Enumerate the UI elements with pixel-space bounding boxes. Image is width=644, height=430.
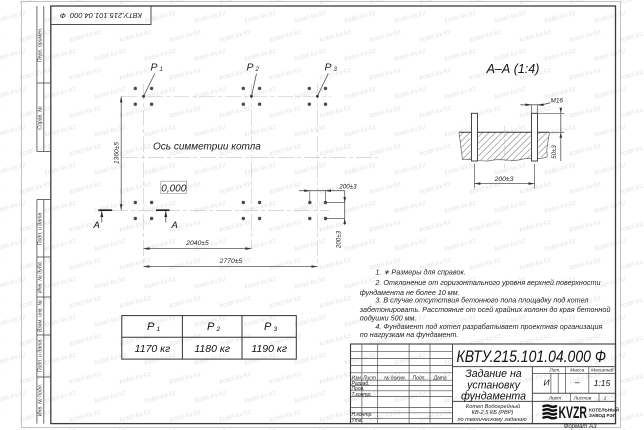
svg-text:kotel-kv.kz: kotel-kv.kz bbox=[194, 124, 228, 139]
svg-text:kotel-kv.kz: kotel-kv.kz bbox=[619, 29, 644, 44]
svg-text:kotel-kv.kz: kotel-kv.kz bbox=[44, 86, 78, 101]
svg-text:kotel-kv.kz: kotel-kv.kz bbox=[444, 48, 478, 63]
svg-text:Листов: Листов bbox=[573, 395, 592, 401]
svg-text:kotel-kv.kz: kotel-kv.kz bbox=[369, 67, 403, 82]
svg-text:kotel-kv.kz: kotel-kv.kz bbox=[0, 257, 2, 272]
svg-text:kotel-kv.kz: kotel-kv.kz bbox=[94, 276, 128, 291]
svg-text:Р: Р bbox=[151, 62, 158, 74]
svg-text:kotel-kv.kz: kotel-kv.kz bbox=[94, 390, 128, 405]
svg-text:kotel-kv.kz: kotel-kv.kz bbox=[69, 295, 103, 310]
svg-text:kotel-kv.kz: kotel-kv.kz bbox=[19, 257, 53, 272]
svg-text:kotel-kv.kz: kotel-kv.kz bbox=[619, 295, 644, 310]
svg-text:kotel-kv.kz: kotel-kv.kz bbox=[0, 390, 27, 405]
svg-text:Р: Р bbox=[247, 62, 254, 74]
svg-text:kotel-kv.kz: kotel-kv.kz bbox=[119, 295, 153, 310]
svg-text:kotel-kv.kz: kotel-kv.kz bbox=[194, 200, 228, 215]
svg-text:kotel-kv.kz: kotel-kv.kz bbox=[144, 162, 178, 177]
svg-text:kotel-kv.kz: kotel-kv.kz bbox=[94, 124, 128, 139]
svg-text:kotel-kv.kz: kotel-kv.kz bbox=[19, 67, 53, 82]
svg-text:kotel-kv.kz: kotel-kv.kz bbox=[419, 67, 453, 82]
svg-text:1190 кг: 1190 кг bbox=[251, 343, 287, 355]
svg-text:КВТУ.215.101.04.000 Ф: КВТУ.215.101.04.000 Ф bbox=[60, 11, 142, 20]
svg-text:Подп. и дата: Подп. и дата bbox=[37, 340, 43, 373]
svg-text:kotel-kv.kz: kotel-kv.kz bbox=[0, 314, 27, 329]
svg-text:kotel-kv.kz: kotel-kv.kz bbox=[144, 200, 178, 215]
svg-text:50±3: 50±3 bbox=[551, 145, 558, 159]
svg-text:Р: Р bbox=[207, 321, 215, 333]
svg-text:kotel-kv.kz: kotel-kv.kz bbox=[194, 48, 228, 63]
svg-text:kotel-kv.kz: kotel-kv.kz bbox=[194, 86, 228, 101]
svg-text:2: 2 bbox=[216, 326, 221, 333]
svg-text:kotel-kv.kz: kotel-kv.kz bbox=[419, 409, 453, 424]
svg-text:kotel-kv.kz: kotel-kv.kz bbox=[544, 48, 578, 63]
svg-text:kotel-kv.kz: kotel-kv.kz bbox=[144, 390, 178, 405]
svg-text:kotel-kv.kz: kotel-kv.kz bbox=[169, 409, 203, 424]
svg-text:kotel-kv.kz: kotel-kv.kz bbox=[494, 48, 528, 63]
svg-text:kotel-kv.kz: kotel-kv.kz bbox=[494, 86, 528, 101]
svg-text:2040±5: 2040±5 bbox=[185, 240, 209, 247]
svg-text:kotel-kv.kz: kotel-kv.kz bbox=[194, 276, 228, 291]
svg-text:kotel-kv.kz: kotel-kv.kz bbox=[269, 181, 303, 196]
svg-text:Подп.: Подп. bbox=[413, 376, 426, 382]
svg-text:kotel-kv.kz: kotel-kv.kz bbox=[19, 181, 53, 196]
svg-text:kotel-kv.kz: kotel-kv.kz bbox=[619, 257, 644, 272]
svg-text:kotel-kv.kz: kotel-kv.kz bbox=[544, 200, 578, 215]
svg-text:3. В случае отсутствия бетонно: 3. В случае отсутствия бетонного пола пл… bbox=[375, 296, 588, 305]
svg-text:kotel-kv.kz: kotel-kv.kz bbox=[619, 409, 644, 424]
svg-text:kotel-kv.kz: kotel-kv.kz bbox=[169, 29, 203, 44]
svg-text:kotel-kv.kz: kotel-kv.kz bbox=[269, 257, 303, 272]
svg-text:kotel-kv.kz: kotel-kv.kz bbox=[319, 29, 353, 44]
svg-text:kotel-kv.kz: kotel-kv.kz bbox=[444, 10, 478, 25]
svg-text:kotel-kv.kz: kotel-kv.kz bbox=[344, 48, 378, 63]
svg-text:kotel-kv.kz: kotel-kv.kz bbox=[619, 0, 644, 6]
svg-text:1:15: 1:15 bbox=[594, 378, 611, 388]
svg-text:kotel-kv.kz: kotel-kv.kz bbox=[269, 143, 303, 158]
svg-text:kotel-kv.kz: kotel-kv.kz bbox=[44, 390, 78, 405]
svg-text:kotel-kv.kz: kotel-kv.kz bbox=[294, 352, 328, 367]
svg-text:kotel-kv.kz: kotel-kv.kz bbox=[369, 409, 403, 424]
svg-text:kotel-kv.kz: kotel-kv.kz bbox=[0, 409, 2, 424]
svg-text:kotel-kv.kz: kotel-kv.kz bbox=[419, 105, 453, 120]
svg-text:kotel-kv.kz: kotel-kv.kz bbox=[69, 181, 103, 196]
svg-text:kotel-kv.kz: kotel-kv.kz bbox=[69, 0, 103, 6]
svg-text:kotel-kv.kz: kotel-kv.kz bbox=[169, 0, 203, 6]
svg-text:М16: М16 bbox=[551, 97, 564, 104]
svg-text:kotel-kv.kz: kotel-kv.kz bbox=[0, 105, 2, 120]
svg-text:kotel-kv.kz: kotel-kv.kz bbox=[94, 162, 128, 177]
svg-text:kotel-kv.kz: kotel-kv.kz bbox=[594, 124, 628, 139]
svg-text:kotel-kv.kz: kotel-kv.kz bbox=[544, 10, 578, 25]
svg-text:kotel-kv.kz: kotel-kv.kz bbox=[469, 257, 503, 272]
svg-text:kotel-kv.kz: kotel-kv.kz bbox=[494, 10, 528, 25]
svg-text:kotel-kv.kz: kotel-kv.kz bbox=[269, 371, 303, 386]
svg-text:kotel-kv.kz: kotel-kv.kz bbox=[369, 105, 403, 120]
svg-text:КОТЕЛЬНЫЙ: КОТЕЛЬНЫЙ bbox=[589, 406, 619, 413]
svg-text:kotel-kv.kz: kotel-kv.kz bbox=[244, 10, 278, 25]
svg-text:Т.контр.: Т.контр. bbox=[352, 392, 372, 398]
svg-text:по техническому заданию: по техническому заданию bbox=[457, 417, 527, 423]
svg-text:200±3: 200±3 bbox=[494, 176, 514, 183]
svg-text:kotel-kv.kz: kotel-kv.kz bbox=[519, 257, 553, 272]
svg-text:kotel-kv.kz: kotel-kv.kz bbox=[244, 124, 278, 139]
svg-text:kotel-kv.kz: kotel-kv.kz bbox=[394, 48, 428, 63]
svg-text:kotel-kv.kz: kotel-kv.kz bbox=[0, 124, 27, 139]
svg-text:kotel-kv.kz: kotel-kv.kz bbox=[244, 238, 278, 253]
svg-text:kotel-kv.kz: kotel-kv.kz bbox=[69, 371, 103, 386]
svg-text:kotel-kv.kz: kotel-kv.kz bbox=[369, 0, 403, 6]
svg-text:Инв. № подл.: Инв. № подл. bbox=[37, 384, 43, 416]
svg-text:КВТУ.215.101.04.000 Ф: КВТУ.215.101.04.000 Ф bbox=[457, 348, 607, 366]
svg-text:–: – bbox=[574, 377, 580, 387]
svg-text:kotel-kv.kz: kotel-kv.kz bbox=[44, 124, 78, 139]
svg-text:kotel-kv.kz: kotel-kv.kz bbox=[169, 295, 203, 310]
svg-text:kotel-kv.kz: kotel-kv.kz bbox=[244, 390, 278, 405]
svg-text:kotel-kv.kz: kotel-kv.kz bbox=[119, 257, 153, 272]
svg-text:kotel-kv.kz: kotel-kv.kz bbox=[169, 67, 203, 82]
svg-text:Перв. примен.: Перв. примен. bbox=[37, 28, 43, 62]
svg-text:kotel-kv.kz: kotel-kv.kz bbox=[569, 181, 603, 196]
svg-text:kotel-kv.kz: kotel-kv.kz bbox=[0, 143, 2, 158]
svg-text:kotel-kv.kz: kotel-kv.kz bbox=[269, 295, 303, 310]
svg-text:kotel-kv.kz: kotel-kv.kz bbox=[0, 352, 27, 367]
svg-text:kotel-kv.kz: kotel-kv.kz bbox=[269, 67, 303, 82]
svg-text:kotel-kv.kz: kotel-kv.kz bbox=[119, 105, 153, 120]
svg-text:kotel-kv.kz: kotel-kv.kz bbox=[119, 409, 153, 424]
svg-text:Ось симметрии котла: Ось симметрии котла bbox=[153, 141, 261, 152]
svg-text:kotel-kv.kz: kotel-kv.kz bbox=[569, 257, 603, 272]
svg-text:kotel-kv.kz: kotel-kv.kz bbox=[69, 105, 103, 120]
svg-text:kotel-kv.kz: kotel-kv.kz bbox=[519, 333, 553, 348]
svg-text:kotel-kv.kz: kotel-kv.kz bbox=[394, 200, 428, 215]
svg-text:kotel-kv.kz: kotel-kv.kz bbox=[119, 371, 153, 386]
svg-text:kotel-kv.kz: kotel-kv.kz bbox=[269, 409, 303, 424]
svg-text:kotel-kv.kz: kotel-kv.kz bbox=[619, 105, 644, 120]
svg-text:200±3: 200±3 bbox=[336, 230, 343, 249]
svg-text:kotel-kv.kz: kotel-kv.kz bbox=[19, 143, 53, 158]
svg-text:kotel-kv.kz: kotel-kv.kz bbox=[0, 29, 2, 44]
svg-text:kotel-kv.kz: kotel-kv.kz bbox=[119, 29, 153, 44]
svg-text:Взам. инв. №: Взам. инв. № bbox=[37, 300, 43, 332]
svg-text:Котел Водогрейный: Котел Водогрейный bbox=[466, 403, 520, 410]
svg-text:kotel-kv.kz: kotel-kv.kz bbox=[194, 10, 228, 25]
svg-text:kotel-kv.kz: kotel-kv.kz bbox=[44, 276, 78, 291]
svg-text:kotel-kv.kz: kotel-kv.kz bbox=[19, 105, 53, 120]
svg-text:1: 1 bbox=[157, 326, 161, 333]
svg-text:kotel-kv.kz: kotel-kv.kz bbox=[0, 219, 2, 234]
svg-text:А: А bbox=[171, 220, 178, 231]
svg-text:kotel-kv.kz: kotel-kv.kz bbox=[19, 29, 53, 44]
svg-text:Лит.: Лит. bbox=[548, 368, 560, 374]
svg-text:kotel-kv.kz: kotel-kv.kz bbox=[619, 333, 644, 348]
svg-text:Р: Р bbox=[325, 62, 332, 74]
svg-text:Утв.: Утв. bbox=[352, 418, 363, 424]
svg-text:kotel-kv.kz: kotel-kv.kz bbox=[344, 10, 378, 25]
svg-text:kotel-kv.kz: kotel-kv.kz bbox=[319, 0, 353, 6]
svg-text:kotel-kv.kz: kotel-kv.kz bbox=[269, 219, 303, 234]
svg-text:kotel-kv.kz: kotel-kv.kz bbox=[0, 238, 27, 253]
svg-text:kotel-kv.kz: kotel-kv.kz bbox=[619, 371, 644, 386]
svg-text:kotel-kv.kz: kotel-kv.kz bbox=[119, 181, 153, 196]
svg-text:kotel-kv.kz: kotel-kv.kz bbox=[394, 238, 428, 253]
svg-text:kotel-kv.kz: kotel-kv.kz bbox=[244, 276, 278, 291]
svg-text:kotel-kv.kz: kotel-kv.kz bbox=[569, 105, 603, 120]
svg-text:kotel-kv.kz: kotel-kv.kz bbox=[244, 162, 278, 177]
svg-text:kotel-kv.kz: kotel-kv.kz bbox=[94, 238, 128, 253]
svg-text:kotel-kv.kz: kotel-kv.kz bbox=[369, 219, 403, 234]
svg-text:kotel-kv.kz: kotel-kv.kz bbox=[394, 10, 428, 25]
svg-text:kotel-kv.kz: kotel-kv.kz bbox=[0, 276, 27, 291]
svg-text:kotel-kv.kz: kotel-kv.kz bbox=[469, 219, 503, 234]
svg-text:kotel-kv.kz: kotel-kv.kz bbox=[294, 390, 328, 405]
svg-text:Задание на: Задание на bbox=[465, 368, 522, 380]
svg-text:2: 2 bbox=[255, 67, 260, 73]
svg-text:kotel-kv.kz: kotel-kv.kz bbox=[469, 29, 503, 44]
svg-text:kotel-kv.kz: kotel-kv.kz bbox=[219, 409, 253, 424]
svg-text:kotel-kv.kz: kotel-kv.kz bbox=[269, 0, 303, 6]
svg-text:kotel-kv.kz: kotel-kv.kz bbox=[344, 86, 378, 101]
svg-text:kotel-kv.kz: kotel-kv.kz bbox=[119, 143, 153, 158]
svg-text:kotel-kv.kz: kotel-kv.kz bbox=[94, 48, 128, 63]
svg-text:kotel-kv.kz: kotel-kv.kz bbox=[219, 181, 253, 196]
svg-text:kotel-kv.kz: kotel-kv.kz bbox=[319, 409, 353, 424]
svg-text:kotel-kv.kz: kotel-kv.kz bbox=[419, 219, 453, 234]
svg-text:kotel-kv.kz: kotel-kv.kz bbox=[419, 29, 453, 44]
svg-text:kotel-kv.kz: kotel-kv.kz bbox=[44, 200, 78, 215]
svg-text:kotel-kv.kz: kotel-kv.kz bbox=[544, 162, 578, 177]
svg-text:kotel-kv.kz: kotel-kv.kz bbox=[19, 219, 53, 234]
svg-text:kotel-kv.kz: kotel-kv.kz bbox=[394, 124, 428, 139]
svg-text:kotel-kv.kz: kotel-kv.kz bbox=[144, 124, 178, 139]
svg-text:kotel-kv.kz: kotel-kv.kz bbox=[144, 10, 178, 25]
svg-text:200±3: 200±3 bbox=[338, 184, 357, 191]
svg-text:kotel-kv.kz: kotel-kv.kz bbox=[319, 295, 353, 310]
svg-text:Инв. № дубл.: Инв. № дубл. bbox=[37, 261, 43, 293]
svg-text:Дата: Дата bbox=[433, 376, 447, 382]
svg-text:kotel-kv.kz: kotel-kv.kz bbox=[44, 238, 78, 253]
svg-text:kotel-kv.kz: kotel-kv.kz bbox=[219, 219, 253, 234]
svg-text:Р: Р bbox=[147, 321, 155, 333]
svg-text:kotel-kv.kz: kotel-kv.kz bbox=[569, 219, 603, 234]
svg-text:kotel-kv.kz: kotel-kv.kz bbox=[0, 0, 2, 6]
svg-text:kotel-kv.kz: kotel-kv.kz bbox=[344, 162, 378, 177]
svg-text:0,000: 0,000 bbox=[161, 183, 186, 194]
svg-text:1: 1 bbox=[604, 395, 607, 401]
svg-text:kotel-kv.kz: kotel-kv.kz bbox=[469, 333, 503, 348]
svg-text:kotel-kv.kz: kotel-kv.kz bbox=[0, 48, 27, 63]
svg-text:kotel-kv.kz: kotel-kv.kz bbox=[69, 409, 103, 424]
svg-text:kotel-kv.kz: kotel-kv.kz bbox=[0, 333, 2, 348]
svg-text:1. ∗ Размеры для справок.: 1. ∗ Размеры для справок. bbox=[375, 267, 466, 276]
svg-text:kotel-kv.kz: kotel-kv.kz bbox=[169, 105, 203, 120]
svg-text:kotel-kv.kz: kotel-kv.kz bbox=[0, 67, 2, 82]
svg-text:kotel-kv.kz: kotel-kv.kz bbox=[494, 238, 528, 253]
svg-text:kotel-kv.kz: kotel-kv.kz bbox=[294, 124, 328, 139]
svg-text:kotel-kv.kz: kotel-kv.kz bbox=[344, 200, 378, 215]
svg-text:№ докум.: № докум. bbox=[384, 376, 406, 382]
svg-text:kotel-kv.kz: kotel-kv.kz bbox=[369, 29, 403, 44]
svg-text:kotel-kv.kz: kotel-kv.kz bbox=[19, 0, 53, 6]
svg-text:kotel-kv.kz: kotel-kv.kz bbox=[444, 86, 478, 101]
svg-text:ЗАВОД РЭП: ЗАВОД РЭП bbox=[589, 413, 616, 418]
svg-text:Подп. и дата: Подп. и дата bbox=[37, 213, 43, 246]
svg-text:kotel-kv.kz: kotel-kv.kz bbox=[369, 143, 403, 158]
svg-text:Лист: Лист bbox=[548, 395, 561, 401]
svg-text:kotel-kv.kz: kotel-kv.kz bbox=[394, 352, 428, 367]
svg-text:1360±5: 1360±5 bbox=[113, 142, 120, 164]
svg-text:kotel-kv.kz: kotel-kv.kz bbox=[319, 257, 353, 272]
svg-text:kotel-kv.kz: kotel-kv.kz bbox=[294, 238, 328, 253]
svg-text:kotel-kv.kz: kotel-kv.kz bbox=[294, 48, 328, 63]
svg-text:kotel-kv.kz: kotel-kv.kz bbox=[294, 10, 328, 25]
svg-text:kotel-kv.kz: kotel-kv.kz bbox=[119, 0, 153, 6]
svg-text:kotel-kv.kz: kotel-kv.kz bbox=[394, 162, 428, 177]
svg-text:А: А bbox=[93, 220, 100, 231]
svg-text:kotel-kv.kz: kotel-kv.kz bbox=[594, 238, 628, 253]
svg-text:kotel-kv.kz: kotel-kv.kz bbox=[269, 105, 303, 120]
svg-text:1170 кг: 1170 кг bbox=[135, 343, 171, 355]
svg-text:kotel-kv.kz: kotel-kv.kz bbox=[594, 86, 628, 101]
svg-text:3: 3 bbox=[274, 326, 278, 333]
svg-text:И: И bbox=[543, 378, 550, 388]
svg-text:kotel-kv.kz: kotel-kv.kz bbox=[294, 276, 328, 291]
svg-text:kotel-kv.kz: kotel-kv.kz bbox=[469, 0, 503, 6]
svg-text:kotel-kv.kz: kotel-kv.kz bbox=[319, 333, 353, 348]
svg-text:kotel-kv.kz: kotel-kv.kz bbox=[344, 238, 378, 253]
svg-text:kotel-kv.kz: kotel-kv.kz bbox=[619, 143, 644, 158]
svg-text:kotel-kv.kz: kotel-kv.kz bbox=[0, 181, 2, 196]
svg-text:kotel-kv.kz: kotel-kv.kz bbox=[344, 124, 378, 139]
svg-text:kotel-kv.kz: kotel-kv.kz bbox=[569, 333, 603, 348]
svg-text:Масштаб: Масштаб bbox=[591, 368, 614, 374]
svg-text:Справ. №: Справ. № bbox=[37, 106, 43, 130]
svg-text:1: 1 bbox=[160, 67, 163, 73]
svg-text:kotel-kv.kz: kotel-kv.kz bbox=[344, 352, 378, 367]
svg-text:1180 кг: 1180 кг bbox=[194, 343, 230, 355]
svg-text:Масса: Масса bbox=[570, 368, 585, 374]
svg-text:kotel-kv.kz: kotel-kv.kz bbox=[519, 0, 553, 6]
svg-text:kotel-kv.kz: kotel-kv.kz bbox=[369, 181, 403, 196]
svg-text:kotel-kv.kz: kotel-kv.kz bbox=[69, 333, 103, 348]
svg-text:kotel-kv.kz: kotel-kv.kz bbox=[144, 86, 178, 101]
svg-text:kotel-kv.kz: kotel-kv.kz bbox=[69, 67, 103, 82]
svg-text:kotel-kv.kz: kotel-kv.kz bbox=[594, 200, 628, 215]
svg-text:kotel-kv.kz: kotel-kv.kz bbox=[194, 390, 228, 405]
svg-text:kotel-kv.kz: kotel-kv.kz bbox=[69, 143, 103, 158]
svg-text:kotel-kv.kz: kotel-kv.kz bbox=[194, 162, 228, 177]
svg-text:KVZR: KVZR bbox=[559, 403, 588, 422]
svg-text:kotel-kv.kz: kotel-kv.kz bbox=[619, 181, 644, 196]
svg-text:kotel-kv.kz: kotel-kv.kz bbox=[519, 219, 553, 234]
svg-text:kotel-kv.kz: kotel-kv.kz bbox=[219, 29, 253, 44]
svg-text:kotel-kv.kz: kotel-kv.kz bbox=[44, 352, 78, 367]
svg-text:kotel-kv.kz: kotel-kv.kz bbox=[219, 371, 253, 386]
svg-text:kotel-kv.kz: kotel-kv.kz bbox=[144, 48, 178, 63]
svg-text:kotel-kv.kz: kotel-kv.kz bbox=[444, 200, 478, 215]
svg-text:kotel-kv.kz: kotel-kv.kz bbox=[19, 409, 53, 424]
svg-text:kotel-kv.kz: kotel-kv.kz bbox=[444, 238, 478, 253]
svg-text:kotel-kv.kz: kotel-kv.kz bbox=[0, 10, 27, 25]
svg-text:kotel-kv.kz: kotel-kv.kz bbox=[144, 238, 178, 253]
svg-text:kotel-kv.kz: kotel-kv.kz bbox=[219, 105, 253, 120]
svg-text:kotel-kv.kz: kotel-kv.kz bbox=[44, 48, 78, 63]
svg-text:kotel-kv.kz: kotel-kv.kz bbox=[169, 257, 203, 272]
svg-text:kotel-kv.kz: kotel-kv.kz bbox=[94, 200, 128, 215]
svg-text:kotel-kv.kz: kotel-kv.kz bbox=[94, 86, 128, 101]
svg-text:kotel-kv.kz: kotel-kv.kz bbox=[569, 0, 603, 6]
svg-text:kotel-kv.kz: kotel-kv.kz bbox=[119, 67, 153, 82]
svg-text:kotel-kv.kz: kotel-kv.kz bbox=[294, 314, 328, 329]
svg-text:kotel-kv.kz: kotel-kv.kz bbox=[69, 29, 103, 44]
svg-text:kotel-kv.kz: kotel-kv.kz bbox=[569, 143, 603, 158]
svg-text:КВ-2,5 КБ (РВР): КВ-2,5 КБ (РВР) bbox=[472, 410, 514, 416]
svg-text:kotel-kv.kz: kotel-kv.kz bbox=[594, 10, 628, 25]
svg-text:kotel-kv.kz: kotel-kv.kz bbox=[44, 314, 78, 329]
svg-text:kotel-kv.kz: kotel-kv.kz bbox=[319, 105, 353, 120]
svg-text:kotel-kv.kz: kotel-kv.kz bbox=[119, 219, 153, 234]
svg-text:kotel-kv.kz: kotel-kv.kz bbox=[44, 162, 78, 177]
svg-text:kotel-kv.kz: kotel-kv.kz bbox=[319, 371, 353, 386]
svg-text:kotel-kv.kz: kotel-kv.kz bbox=[544, 238, 578, 253]
svg-text:kotel-kv.kz: kotel-kv.kz bbox=[294, 162, 328, 177]
svg-text:2770±5: 2770±5 bbox=[219, 258, 243, 265]
svg-text:kotel-kv.kz: kotel-kv.kz bbox=[169, 371, 203, 386]
svg-text:kotel-kv.kz: kotel-kv.kz bbox=[0, 200, 27, 215]
svg-text:kotel-kv.kz: kotel-kv.kz bbox=[519, 29, 553, 44]
svg-text:kotel-kv.kz: kotel-kv.kz bbox=[19, 371, 53, 386]
svg-text:kotel-kv.kz: kotel-kv.kz bbox=[619, 67, 644, 82]
svg-text:kotel-kv.kz: kotel-kv.kz bbox=[219, 295, 253, 310]
svg-text:kotel-kv.kz: kotel-kv.kz bbox=[569, 29, 603, 44]
svg-text:Формат А3: Формат А3 bbox=[564, 424, 597, 430]
svg-text:Р: Р bbox=[264, 321, 272, 333]
svg-text:kotel-kv.kz: kotel-kv.kz bbox=[594, 48, 628, 63]
svg-text:2. Отклонение от горизонтально: 2. Отклонение от горизонтального уровня … bbox=[374, 278, 600, 287]
svg-text:kotel-kv.kz: kotel-kv.kz bbox=[69, 257, 103, 272]
svg-text:kotel-kv.kz: kotel-kv.kz bbox=[619, 219, 644, 234]
svg-text:kotel-kv.kz: kotel-kv.kz bbox=[394, 390, 428, 405]
svg-text:А–А (1:4): А–А (1:4) bbox=[486, 62, 540, 76]
svg-text:kotel-kv.kz: kotel-kv.kz bbox=[569, 67, 603, 82]
svg-text:kotel-kv.kz: kotel-kv.kz bbox=[219, 0, 253, 6]
svg-text:kotel-kv.kz: kotel-kv.kz bbox=[494, 162, 528, 177]
svg-text:kotel-kv.kz: kotel-kv.kz bbox=[444, 162, 478, 177]
svg-text:kotel-kv.kz: kotel-kv.kz bbox=[269, 29, 303, 44]
svg-text:kotel-kv.kz: kotel-kv.kz bbox=[0, 86, 27, 101]
svg-text:kotel-kv.kz: kotel-kv.kz bbox=[0, 295, 2, 310]
svg-text:фундамента: фундамента bbox=[461, 391, 526, 403]
svg-text:kotel-kv.kz: kotel-kv.kz bbox=[419, 143, 453, 158]
svg-text:kotel-kv.kz: kotel-kv.kz bbox=[519, 181, 553, 196]
svg-text:по нагрузкам на фундамент.: по нагрузкам на фундамент. bbox=[360, 330, 459, 339]
svg-text:kotel-kv.kz: kotel-kv.kz bbox=[419, 0, 453, 6]
svg-text:kotel-kv.kz: kotel-kv.kz bbox=[594, 162, 628, 177]
svg-text:kotel-kv.kz: kotel-kv.kz bbox=[394, 86, 428, 101]
svg-text:kotel-kv.kz: kotel-kv.kz bbox=[0, 162, 27, 177]
svg-text:kotel-kv.kz: kotel-kv.kz bbox=[319, 143, 353, 158]
svg-text:kotel-kv.kz: kotel-kv.kz bbox=[144, 276, 178, 291]
svg-text:kotel-kv.kz: kotel-kv.kz bbox=[419, 181, 453, 196]
svg-text:kotel-kv.kz: kotel-kv.kz bbox=[0, 371, 2, 386]
svg-text:kotel-kv.kz: kotel-kv.kz bbox=[494, 200, 528, 215]
